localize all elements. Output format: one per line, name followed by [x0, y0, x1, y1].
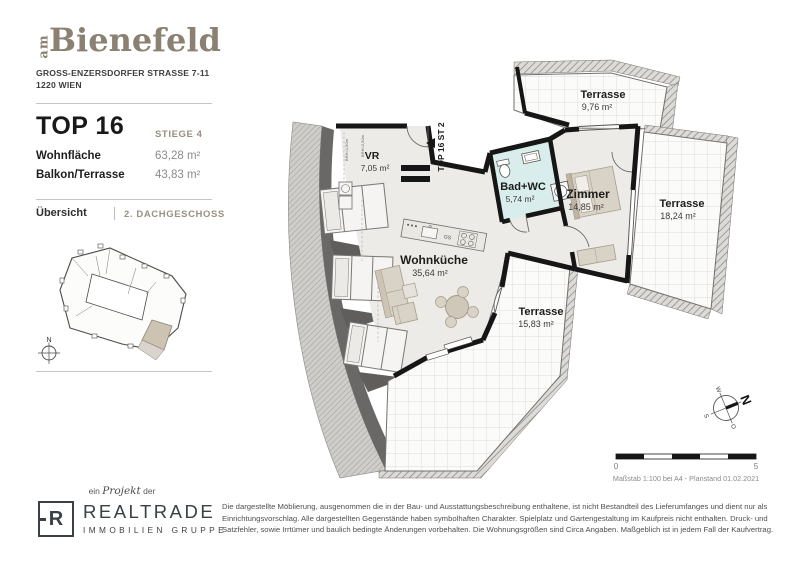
room-area-terrasse-top: 9,76 m² — [582, 102, 613, 112]
wall-niche — [401, 165, 430, 171]
metric-value-balkon: 43,83 m² — [155, 169, 200, 181]
brand-logo: Bienefeld — [49, 21, 221, 59]
compass-needle — [725, 402, 738, 410]
floorplan-sheet: am Bienefeld GROSS-ENZERSDORFER STRASSE … — [0, 0, 800, 566]
wall-niche — [401, 176, 430, 182]
scale-bar: 0 5 Maßstab 1:100 bei A4 - Planstand 01.… — [613, 454, 759, 483]
metric-value-wohnflaeche: 63,28 m² — [155, 150, 200, 162]
stiege-label: STIEGE 4 — [155, 129, 203, 140]
room-label-zimmer: Zimmer — [566, 187, 610, 201]
metric-label-balkon: Balkon/Terrasse — [36, 169, 125, 181]
realtrade-logo-mark: R — [38, 501, 74, 537]
room-area-terrasse-right: 18,24 m² — [660, 211, 696, 221]
room-area-zimmer: 14,85 m² — [568, 202, 604, 212]
project-pre: ein — [89, 486, 100, 496]
room-area-terrasse-bottom: 15,83 m² — [518, 319, 554, 329]
dimension-label: BRH=1,50m — [344, 138, 349, 161]
address-line2: 1220 WIEN — [36, 79, 209, 91]
svg-text:O: O — [729, 424, 736, 431]
tab-divider — [114, 207, 115, 220]
room-area-vr: 7,05 m² — [361, 163, 390, 173]
project-word: Projekt — [102, 485, 140, 497]
scale-caption: Maßstab 1:100 bei A4 - Planstand 01.02.2… — [613, 474, 759, 483]
divider — [36, 103, 212, 104]
svg-text:W: W — [714, 386, 722, 394]
address-line1: GROSS-ENZERSDORFER STRASSE 7-11 — [36, 67, 209, 79]
realtrade-logo: R REALTRADE IMMOBILIEN GRUPPE — [38, 501, 227, 537]
tab-uebersicht: Übersicht — [36, 207, 87, 219]
project-address: GROSS-ENZERSDORFER STRASSE 7-11 1220 WIE… — [36, 67, 209, 92]
realtrade-subtitle: IMMOBILIEN GRUPPE — [83, 525, 227, 535]
site-north-icon: N — [38, 337, 60, 364]
divider — [36, 371, 212, 372]
terrace-right — [627, 125, 738, 319]
floor-plan: GS — [278, 50, 798, 486]
disclaimer-text: Die dargestellte Möblierung, ausgenommen… — [222, 501, 786, 536]
room-label-bad: Bad+WC — [500, 181, 546, 193]
room-label-vr: VR — [365, 150, 380, 162]
entrance-label: TOP 16 ST 2 — [436, 122, 446, 172]
divider — [36, 199, 212, 200]
room-label-terrasse-right: Terrasse — [659, 198, 704, 210]
compass-icon: N S W O — [694, 376, 761, 438]
room-label-wohnkueche: Wohnküche — [400, 253, 468, 267]
room-area-wohnkueche: 35,64 m² — [412, 268, 448, 278]
tab-dachgeschoss: 2. DACHGESCHOSS — [124, 209, 225, 220]
svg-text:N: N — [737, 393, 754, 407]
site-overview-plan: N — [36, 236, 206, 368]
room-label-terrasse-bottom: Terrasse — [518, 306, 563, 318]
project-line: ein Projekt der — [38, 485, 206, 497]
unit-title: TOP 16 — [36, 112, 124, 141]
svg-text:S: S — [702, 413, 709, 419]
scale-start: 0 — [614, 462, 619, 471]
realtrade-logo-letter: R — [49, 508, 63, 531]
metric-label-wohnflaeche: Wohnfläche — [36, 150, 101, 162]
project-post: der — [143, 486, 155, 496]
room-area-bad: 5,74 m² — [506, 194, 535, 204]
scale-end: 5 — [754, 462, 759, 471]
room-label-terrasse-top: Terrasse — [580, 89, 625, 101]
realtrade-name: REALTRADE — [83, 503, 227, 522]
